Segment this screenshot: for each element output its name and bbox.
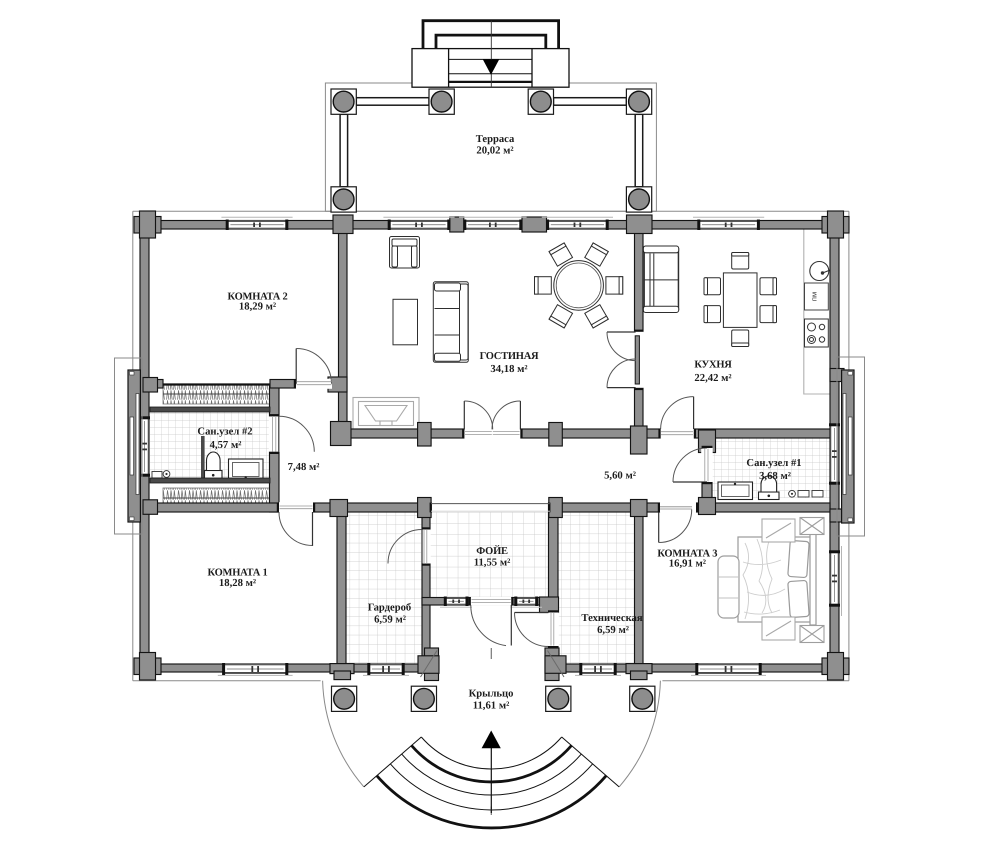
svg-text:6,59 м²: 6,59 м² — [374, 614, 406, 626]
svg-text:ГОСТИНАЯ: ГОСТИНАЯ — [480, 351, 539, 362]
svg-text:6,59 м²: 6,59 м² — [597, 624, 629, 636]
svg-text:18,28 м²: 18,28 м² — [219, 577, 256, 589]
svg-text:3,68 м²: 3,68 м² — [759, 470, 791, 482]
svg-text:ФОЙЕ: ФОЙЕ — [476, 545, 508, 557]
svg-text:18,29 м²: 18,29 м² — [239, 301, 276, 313]
svg-text:7,48 м²: 7,48 м² — [288, 461, 320, 473]
svg-text:20,02 м²: 20,02 м² — [476, 145, 513, 157]
svg-text:4,57 м²: 4,57 м² — [210, 439, 242, 451]
svg-text:Техническая: Техническая — [581, 613, 642, 624]
svg-text:Крыльцо: Крыльцо — [469, 688, 514, 699]
svg-text:Сан.узел #2: Сан.узел #2 — [197, 427, 252, 438]
svg-text:11,61 м²: 11,61 м² — [473, 699, 510, 711]
svg-text:16,91 м²: 16,91 м² — [669, 557, 706, 569]
svg-text:КУХНЯ: КУХНЯ — [694, 359, 732, 370]
svg-text:Гардероб: Гардероб — [368, 603, 411, 614]
svg-text:22,42 м²: 22,42 м² — [694, 372, 731, 384]
svg-text:34,18 м²: 34,18 м² — [490, 363, 527, 375]
svg-text:11,55 м²: 11,55 м² — [474, 557, 511, 569]
svg-text:Терраса: Терраса — [476, 134, 515, 145]
svg-text:пм: пм — [809, 292, 818, 301]
svg-text:Сан.узел #1: Сан.узел #1 — [746, 458, 801, 469]
svg-text:5,60 м²: 5,60 м² — [604, 469, 636, 481]
